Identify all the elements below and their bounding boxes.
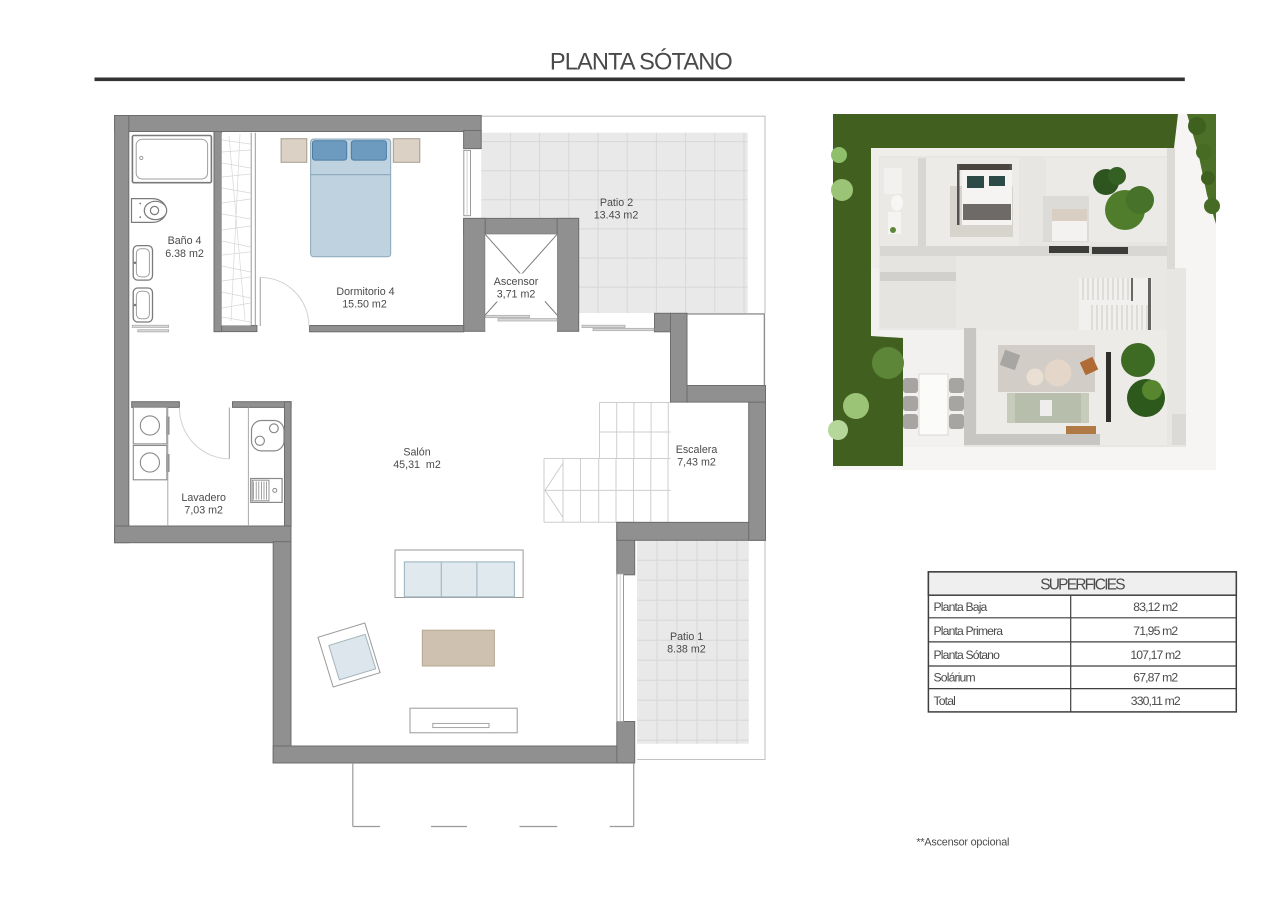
- svg-text:Solárium: Solárium: [934, 671, 976, 685]
- svg-text:7,43 m2: 7,43 m2: [677, 456, 716, 468]
- svg-text:Dormitorio 4: Dormitorio 4: [336, 286, 394, 298]
- svg-text:Planta Baja: Planta Baja: [934, 600, 988, 614]
- svg-text:15.50 m2: 15.50 m2: [342, 298, 387, 310]
- svg-text:Escalera: Escalera: [676, 444, 718, 456]
- svg-text:Planta Primera: Planta Primera: [934, 624, 1004, 638]
- svg-text:6.38 m2: 6.38 m2: [165, 248, 204, 260]
- svg-text:Planta Sótano: Planta Sótano: [934, 648, 1001, 662]
- svg-text:Baño 4: Baño 4: [168, 235, 202, 247]
- svg-text:71,95 m2: 71,95 m2: [1133, 624, 1178, 638]
- svg-text:Lavadero: Lavadero: [181, 492, 226, 504]
- svg-text:67,87 m2: 67,87 m2: [1133, 671, 1178, 685]
- svg-text:PLANTA SÓTANO: PLANTA SÓTANO: [550, 49, 733, 76]
- svg-text:Patio 1: Patio 1: [670, 631, 703, 643]
- svg-text:45,31 m2: 45,31 m2: [393, 459, 441, 471]
- svg-text:7,03 m2: 7,03 m2: [184, 505, 223, 517]
- svg-text:SUPERFICIES: SUPERFICIES: [1040, 577, 1125, 594]
- svg-text:Ascensor: Ascensor: [494, 276, 539, 288]
- svg-text:Patio 2: Patio 2: [600, 197, 633, 209]
- svg-text:3,71 m2: 3,71 m2: [497, 289, 536, 301]
- svg-text:330,11 m2: 330,11 m2: [1131, 694, 1181, 708]
- svg-text:83,12 m2: 83,12 m2: [1133, 600, 1178, 614]
- svg-text:8.38 m2: 8.38 m2: [667, 643, 706, 655]
- svg-text:13.43 m2: 13.43 m2: [594, 210, 639, 222]
- svg-text:107,17 m2: 107,17 m2: [1130, 648, 1181, 662]
- svg-text:Total: Total: [934, 694, 956, 708]
- svg-text:Salón: Salón: [403, 446, 430, 458]
- svg-text:**Ascensor opcional: **Ascensor opcional: [916, 836, 1009, 848]
